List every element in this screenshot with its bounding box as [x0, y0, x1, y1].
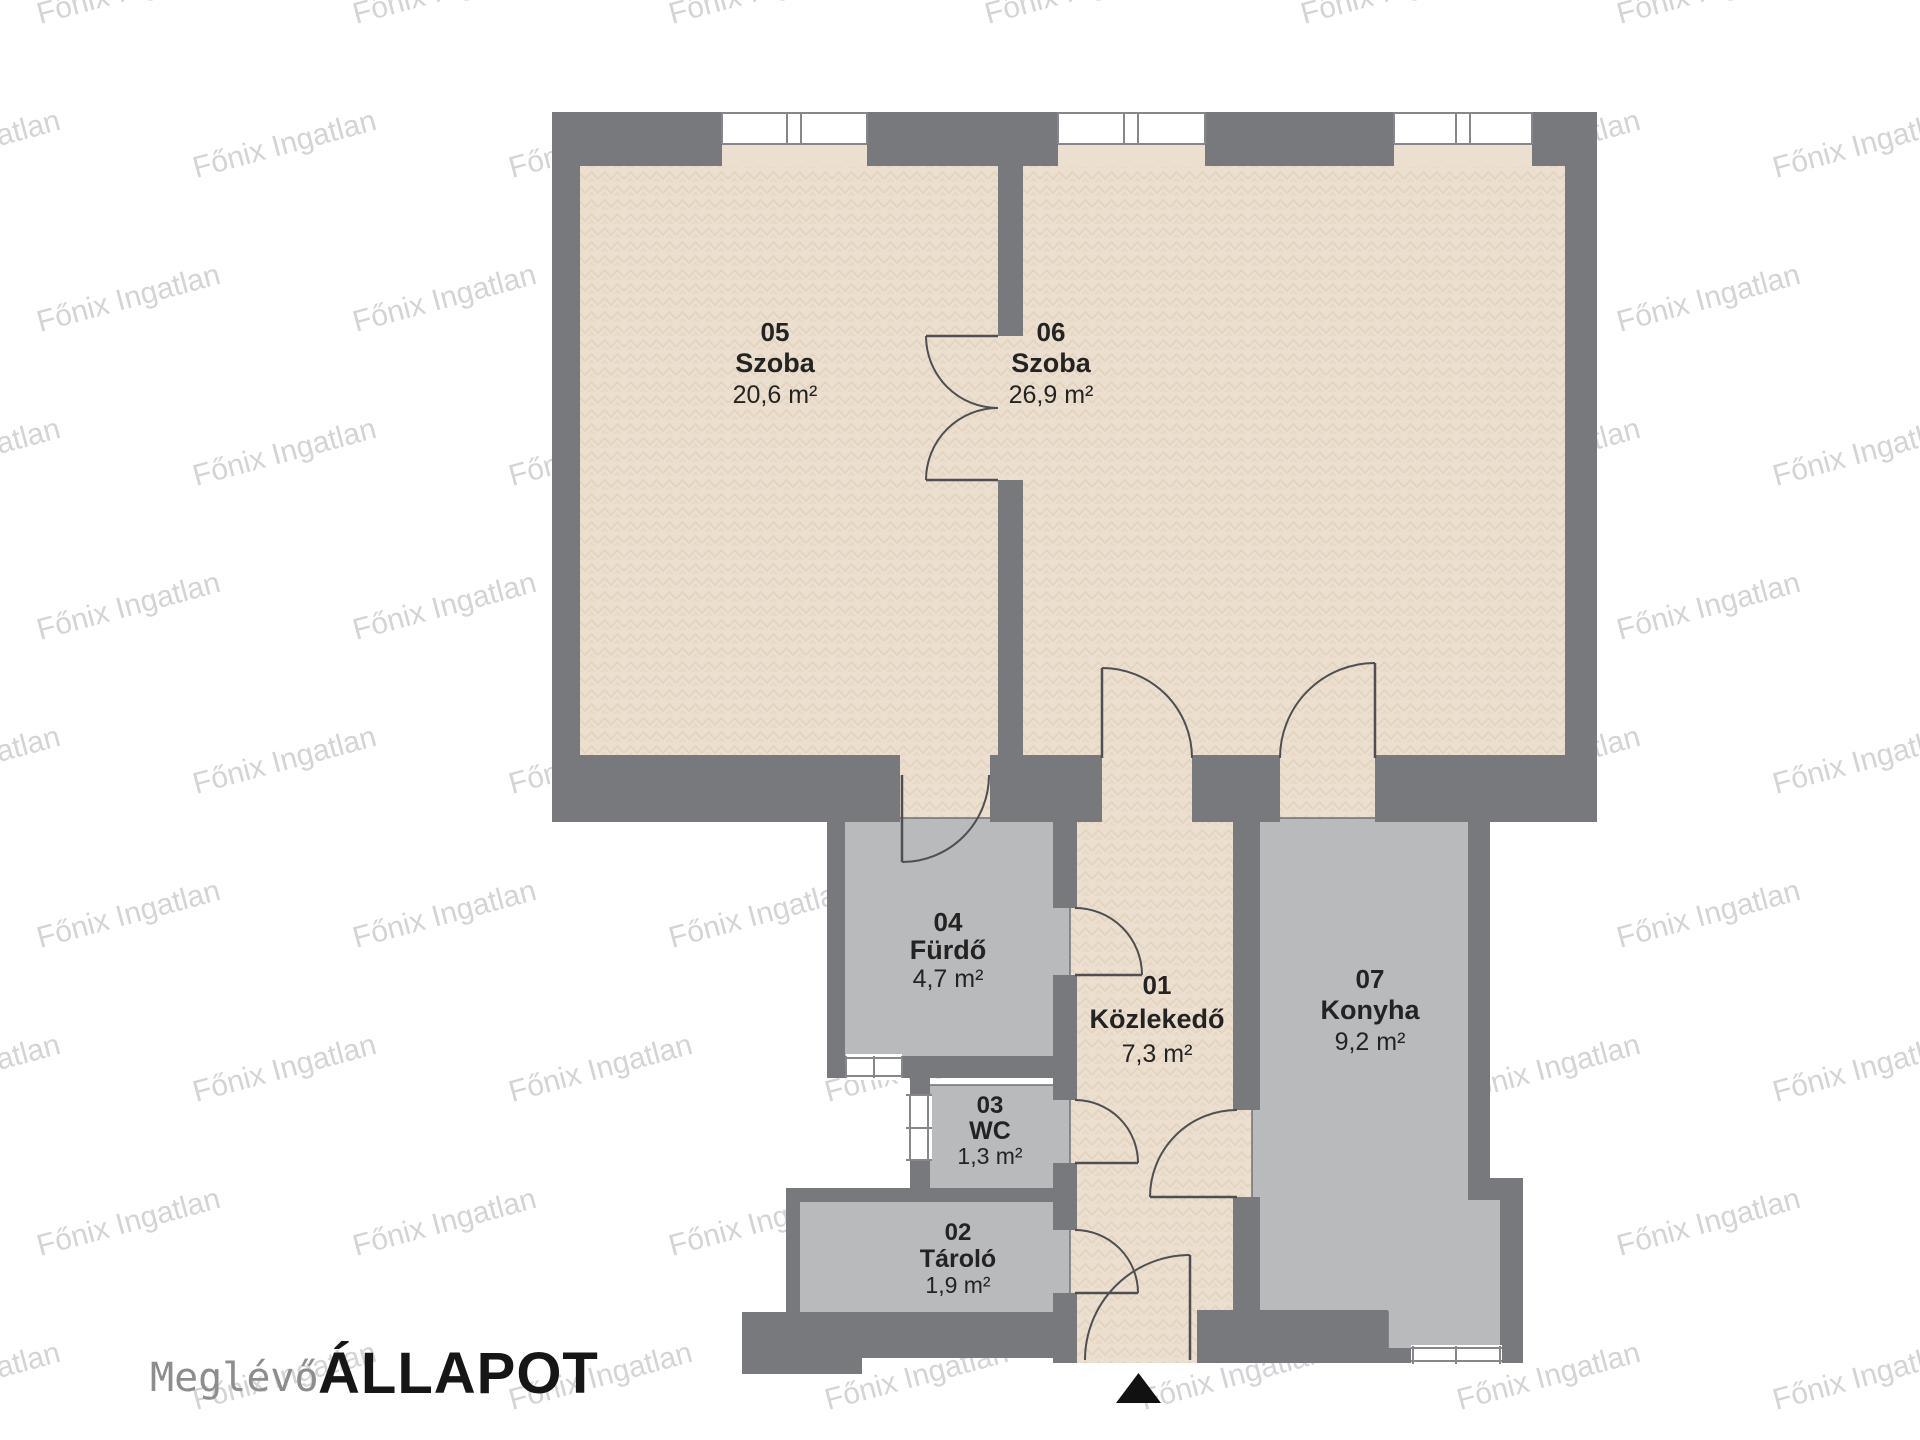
window-1 [722, 110, 867, 144]
window-bay-3 [1394, 143, 1532, 167]
watermark-text: Főnix Ingatlan [1769, 1028, 1920, 1109]
room-area: 1,3 m² [957, 1143, 1023, 1169]
room-number: 06 [1037, 317, 1066, 347]
watermark-text: Főnix Ingatlan [1769, 104, 1920, 185]
room-area: 7,3 m² [1122, 1040, 1193, 1068]
watermark-text: Főnix Ingatlan [1769, 720, 1920, 801]
room-number: 03 [977, 1092, 1004, 1119]
room-number: 04 [934, 907, 963, 937]
wall-top [1205, 112, 1394, 166]
watermark-text: Főnix Ingatlan [33, 258, 224, 339]
watermark-text: Főnix Ingatlan [665, 0, 856, 31]
watermark-text: Főnix Ingatlan [981, 0, 1172, 31]
watermark-text: Főnix Ingatlan [1769, 412, 1920, 493]
watermark-text: Főnix Ingatlan [1613, 1182, 1804, 1263]
watermark-text: Főnix Ingatlan [0, 1336, 64, 1417]
wall-bathroom-south [827, 1056, 848, 1078]
wall-corridor-west [1053, 822, 1077, 908]
watermark-text: Főnix Ingatlan [33, 1182, 224, 1263]
watermark-text: Főnix Ingatlan [0, 412, 64, 493]
wall-right [1565, 112, 1597, 822]
watermark-text: Főnix Ingatlan [33, 566, 224, 647]
plan-title-main: ÁLLAPOT [318, 1341, 599, 1406]
wall-wc-west [910, 1078, 930, 1095]
wall-kitchen-south [1388, 1348, 1413, 1363]
room-number: 02 [945, 1219, 972, 1246]
wall-band [990, 755, 1102, 822]
room-number: 01 [1143, 970, 1172, 1000]
wall-corridor-west [1053, 1163, 1077, 1230]
watermark-text: Főnix Ingatlan [1613, 874, 1804, 955]
watermark-text: Főnix Ingatlan [349, 566, 540, 647]
wall-divider-upper [998, 166, 1023, 336]
room-number: 05 [761, 317, 790, 347]
room-name: Fürdő [910, 935, 986, 965]
wall-kitchen-east-upper [1468, 810, 1490, 1190]
window-2 [1058, 110, 1205, 144]
wall-corridor-west [1053, 975, 1077, 1100]
window-kitchen [1411, 1345, 1502, 1365]
room-area: 9,2 m² [1335, 1028, 1406, 1056]
room-area: 4,7 m² [913, 965, 984, 993]
watermark-text: Főnix Ingatlan [189, 1028, 380, 1109]
watermark-text: Főnix Ingatlan [0, 104, 64, 185]
wall-left [552, 112, 580, 822]
watermark-text: Főnix Ingatlan [349, 874, 540, 955]
watermark-text: Főnix Ingatlan [349, 258, 540, 339]
wall-corridor-east [1233, 755, 1260, 1110]
floor-plan-canvas: Főnix IngatlanFőnix IngatlanFőnix Ingatl… [0, 0, 1920, 1440]
window-3 [1394, 110, 1532, 144]
watermark-text: Főnix Ingatlan [1297, 0, 1488, 31]
wall-top [867, 112, 1058, 166]
room-area: 1,9 m² [925, 1272, 991, 1298]
wall-corridor-east [1233, 1197, 1260, 1312]
wall-kitchen-east-lower [1500, 1190, 1523, 1363]
floor-room-05 [566, 150, 1010, 822]
watermark-text: Főnix Ingatlan [1613, 258, 1804, 339]
watermark-text: Főnix Ingatlan [1613, 566, 1804, 647]
wall-bathroom-west [827, 810, 845, 1072]
room-name: Közlekedő [1089, 1004, 1224, 1034]
watermark-text: Főnix Ingatlan [1769, 1336, 1920, 1417]
window-bay-2 [1058, 143, 1205, 167]
watermark-text: Főnix Ingatlan [1613, 0, 1804, 31]
watermark-text: Főnix Ingatlan [189, 104, 380, 185]
watermark-text: Főnix Ingatlan [33, 874, 224, 955]
wall-wc-south [800, 1188, 1053, 1202]
watermark-text: Főnix Ingatlan [33, 0, 224, 31]
window-bathroom [846, 1054, 902, 1080]
wall-corridor-west [1053, 1293, 1077, 1363]
wall-bathroom-south [900, 1056, 1053, 1078]
wall-block-bottom [1197, 1310, 1388, 1363]
room-name: Szoba [1011, 348, 1091, 378]
wall-storage-west [786, 1188, 800, 1320]
plan-title-prefix: Meglévő [150, 1355, 319, 1401]
room-name: Tároló [920, 1245, 996, 1273]
wall-storage-south [862, 1312, 1077, 1358]
room-name: Szoba [735, 348, 815, 378]
wall-band [552, 755, 900, 822]
watermark-text: Főnix Ingatlan [349, 0, 540, 31]
room-area: 20,6 m² [733, 381, 818, 409]
plan-title: Meglévő ÁLLAPOT [150, 1341, 599, 1406]
watermark-text: Főnix Ingatlan [189, 720, 380, 801]
floor-room-06 [1010, 150, 1580, 818]
wall-stub-bottom-left [742, 1312, 862, 1374]
watermark-text: Főnix Ingatlan [0, 1028, 64, 1109]
watermark-text: Főnix Ingatlan [349, 1182, 540, 1263]
window-wc [906, 1095, 932, 1160]
room-area: 26,9 m² [1009, 381, 1094, 409]
window-bay-1 [722, 143, 867, 167]
watermark-text: Főnix Ingatlan [0, 720, 64, 801]
wall-divider-lower [998, 480, 1023, 770]
room-name: WC [969, 1117, 1011, 1145]
room-name: Konyha [1320, 995, 1420, 1025]
room-number: 07 [1356, 964, 1385, 994]
watermark-text: Főnix Ingatlan [505, 1028, 696, 1109]
watermark-text: Főnix Ingatlan [189, 412, 380, 493]
